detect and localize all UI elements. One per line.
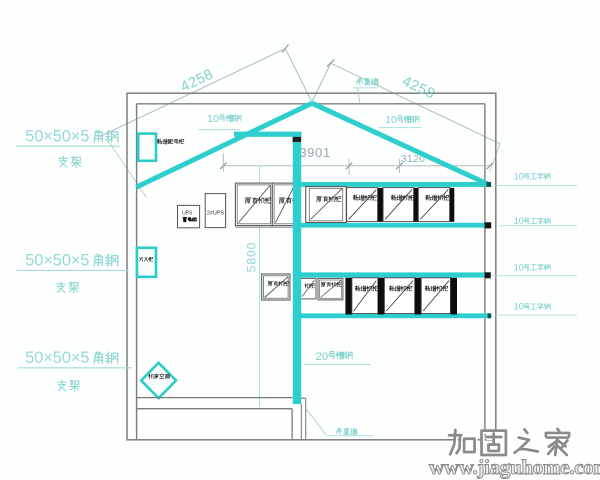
svg-text:10: 10	[514, 171, 524, 181]
svg-text:3901: 3901	[299, 145, 330, 160]
svg-text:5800: 5800	[245, 242, 259, 273]
svg-text:10: 10	[207, 114, 219, 125]
svg-text:10: 10	[514, 216, 524, 226]
svg-text:www.jiaguhome.com: www.jiaguhome.com	[429, 455, 600, 479]
svg-text:50×50×5: 50×50×5	[25, 252, 89, 270]
svg-text:10: 10	[385, 115, 397, 126]
svg-text:50×50×5: 50×50×5	[25, 349, 89, 367]
svg-text:2#UPS: 2#UPS	[207, 211, 224, 217]
svg-text:20: 20	[316, 351, 328, 363]
svg-text:50×50×5: 50×50×5	[25, 128, 89, 146]
svg-text:UPS: UPS	[182, 211, 193, 217]
svg-text:10: 10	[514, 302, 524, 312]
svg-text:10: 10	[514, 262, 524, 272]
